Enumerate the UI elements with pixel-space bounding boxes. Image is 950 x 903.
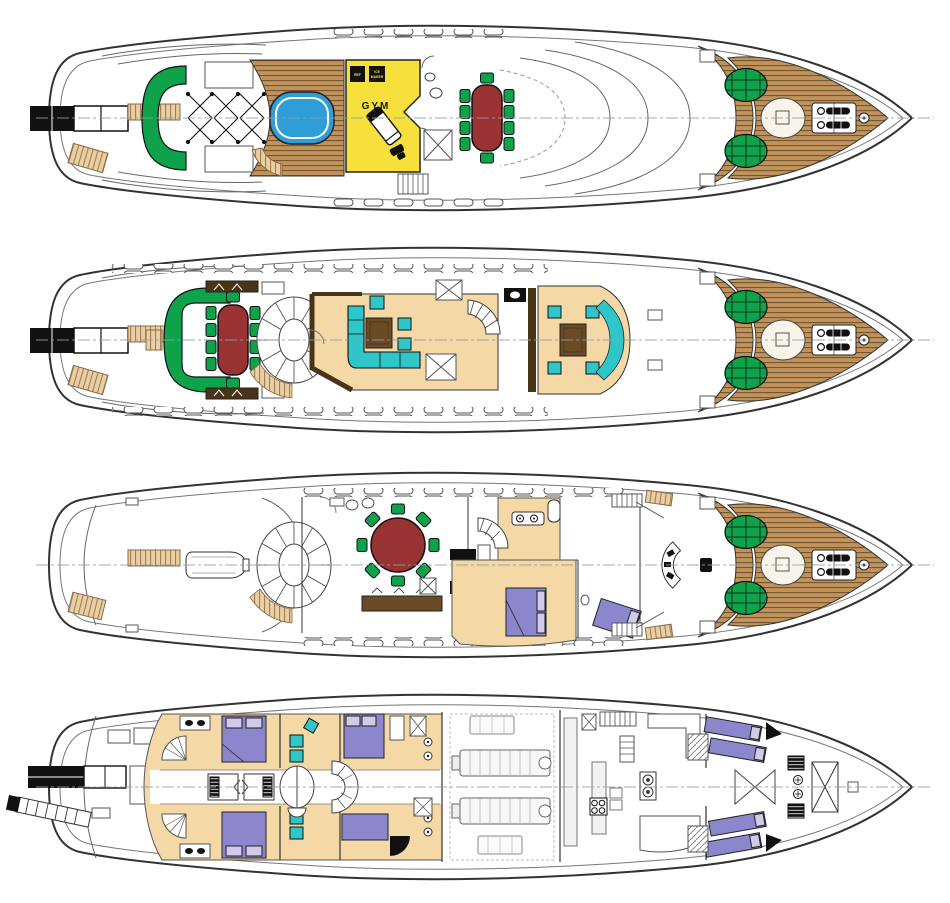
skylight-band-bottom: [330, 198, 510, 207]
window-band-top: [112, 264, 548, 273]
wardrobe: [390, 716, 404, 740]
ref-label: REF: [354, 73, 361, 77]
deck-sun: GYM REF ICE MAKER: [30, 26, 934, 210]
aft-table-top: [205, 62, 253, 88]
chair: [290, 827, 303, 839]
pillow: [362, 716, 376, 726]
stool: [398, 318, 411, 330]
aft-stair: [128, 550, 180, 566]
cleat: [126, 498, 138, 505]
deck-lower: [6, 695, 930, 879]
ice-maker-label-1: ICE: [374, 70, 380, 74]
ga-drawing: GYM REF ICE MAKER: [0, 0, 950, 903]
stool: [548, 362, 561, 374]
stern-passerelle: [28, 766, 126, 788]
window-band-bottom: [112, 407, 548, 416]
pillow: [226, 846, 242, 856]
gym-room: GYM REF ICE MAKER: [346, 60, 420, 172]
tender: [186, 552, 249, 578]
pillow: [246, 846, 262, 856]
crew-bath: [688, 826, 708, 852]
toilet: [581, 595, 589, 605]
chair: [290, 735, 303, 747]
window-band-top: [300, 488, 630, 497]
main-engine-port: [452, 750, 551, 776]
pillow: [246, 718, 262, 728]
stool: [548, 306, 561, 318]
ice-maker-label-2: MAKER: [371, 75, 384, 79]
bed: [342, 814, 388, 840]
pillow: [537, 613, 545, 633]
round-dining-table: [371, 518, 425, 572]
chair: [290, 750, 303, 762]
bar-sink: [510, 292, 520, 299]
pillow: [346, 716, 360, 726]
deck-bridge: [30, 248, 934, 432]
deck-main: [36, 473, 934, 657]
master-cabin: [452, 560, 576, 646]
cleat: [126, 625, 138, 632]
main-engine-starboard: [452, 798, 551, 824]
pillow: [537, 591, 545, 611]
crew-bath: [688, 734, 708, 760]
sideboard: [362, 596, 442, 611]
bathtub: [548, 500, 560, 522]
aft-table-bottom: [205, 146, 253, 172]
side-table: [370, 296, 384, 309]
yacht-deck-plans: GYM REF ICE MAKER: [0, 0, 950, 903]
sky-salon: [310, 280, 498, 390]
pillow: [226, 718, 242, 728]
skylight-band-top: [330, 29, 510, 38]
ice-maker-box: [369, 66, 385, 82]
